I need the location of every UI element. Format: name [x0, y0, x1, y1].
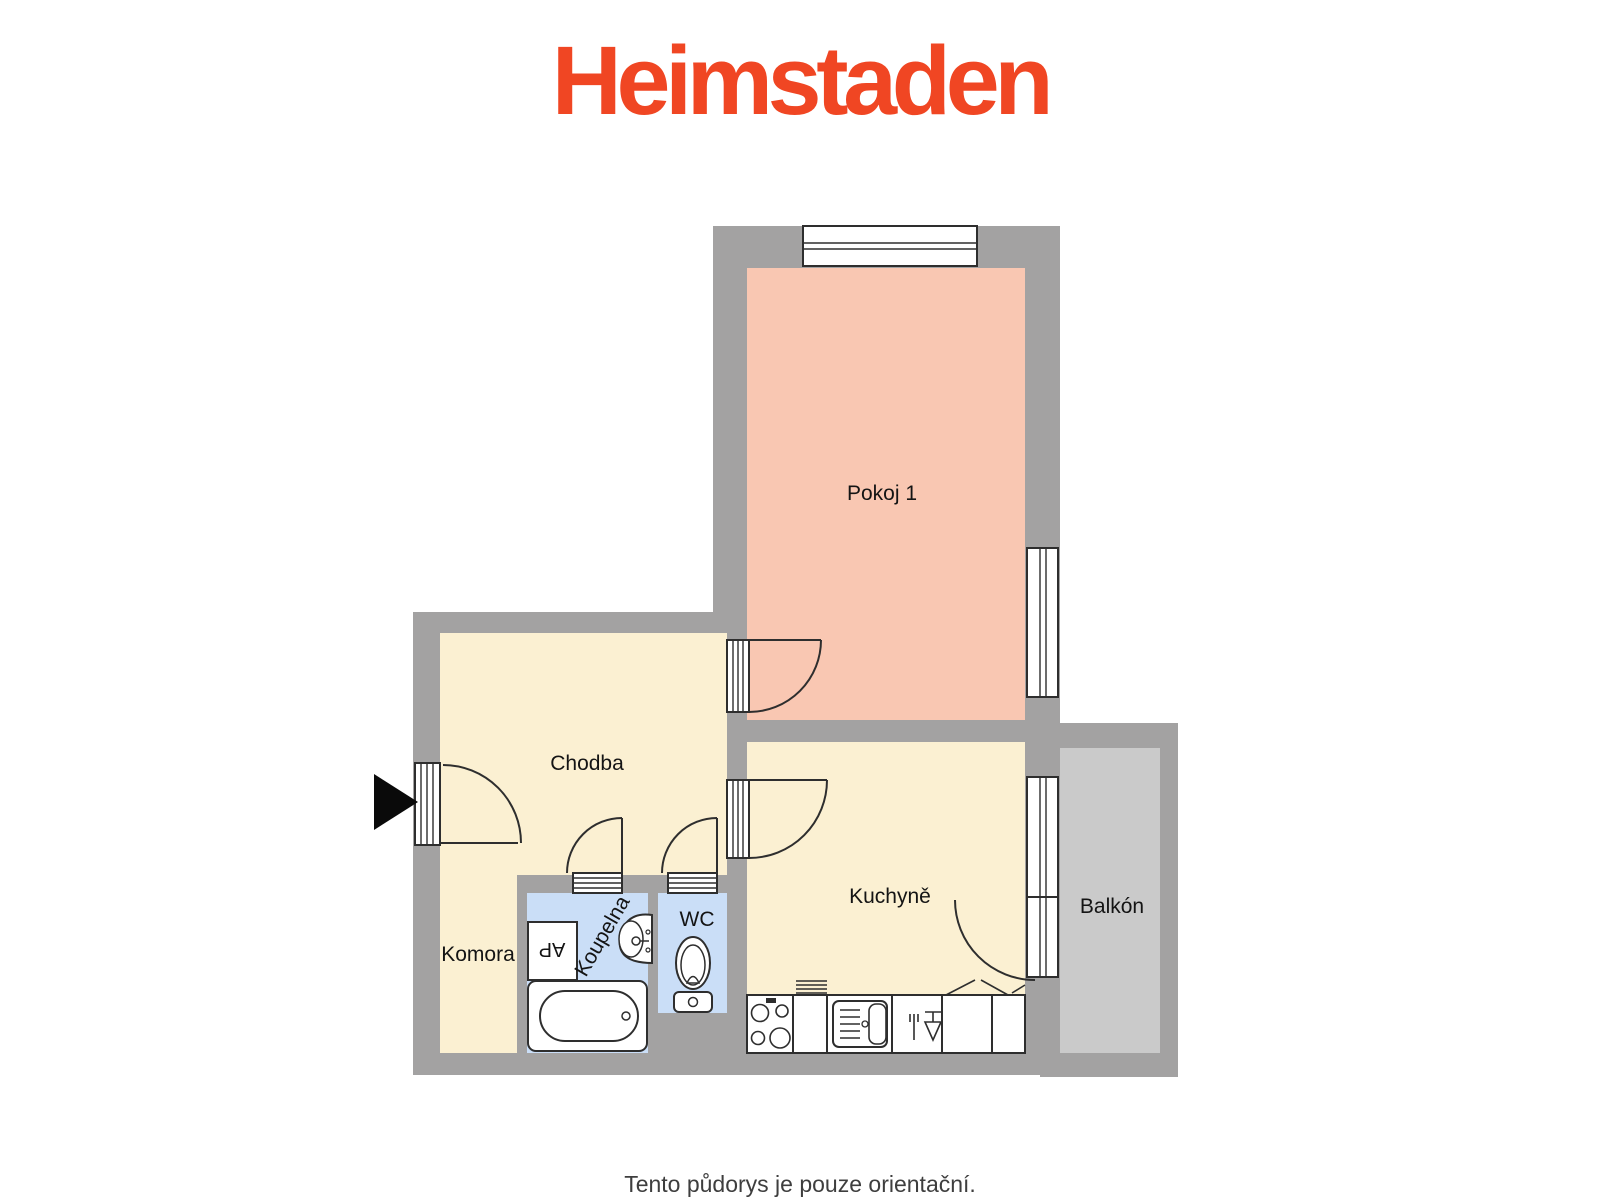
kitchen-tools-cabinet: [892, 995, 942, 1053]
label-komora: Komora: [441, 943, 515, 966]
label-wc: WC: [680, 908, 715, 931]
entrance-arrow-icon: [374, 774, 418, 830]
page: Heimstaden: [0, 0, 1600, 1200]
entrance-door-jamb: [415, 763, 440, 845]
kitchen-sink-icon: [827, 995, 892, 1053]
kuchyne-door-jamb: [727, 780, 749, 858]
label-washing-machine: AP: [539, 938, 566, 960]
floorplan: Pokoj 1 Chodba Komora Koupelna WC Kuchyn…: [0, 0, 1600, 1200]
toilet-icon: [674, 937, 712, 1012]
label-pokoj-1: Pokoj 1: [847, 482, 917, 505]
pokoj1-door-jamb: [727, 640, 749, 712]
window-kuchyne-right: [1027, 777, 1058, 897]
window-pokoj1-right: [1027, 548, 1058, 697]
koupelna-door-jamb: [573, 873, 622, 893]
disclaimer-note: Tento půdorys je pouze orientační.: [0, 1172, 1600, 1197]
bathtub-icon: [528, 981, 647, 1051]
window-pokoj1-top: [803, 226, 977, 266]
wc-door-jamb: [668, 873, 717, 893]
stove-icon: [747, 995, 793, 1053]
balcony-door-jamb: [1027, 897, 1058, 977]
label-kuchyne: Kuchyně: [849, 885, 931, 908]
label-balkon: Balkón: [1080, 895, 1144, 918]
label-chodba: Chodba: [550, 752, 624, 775]
